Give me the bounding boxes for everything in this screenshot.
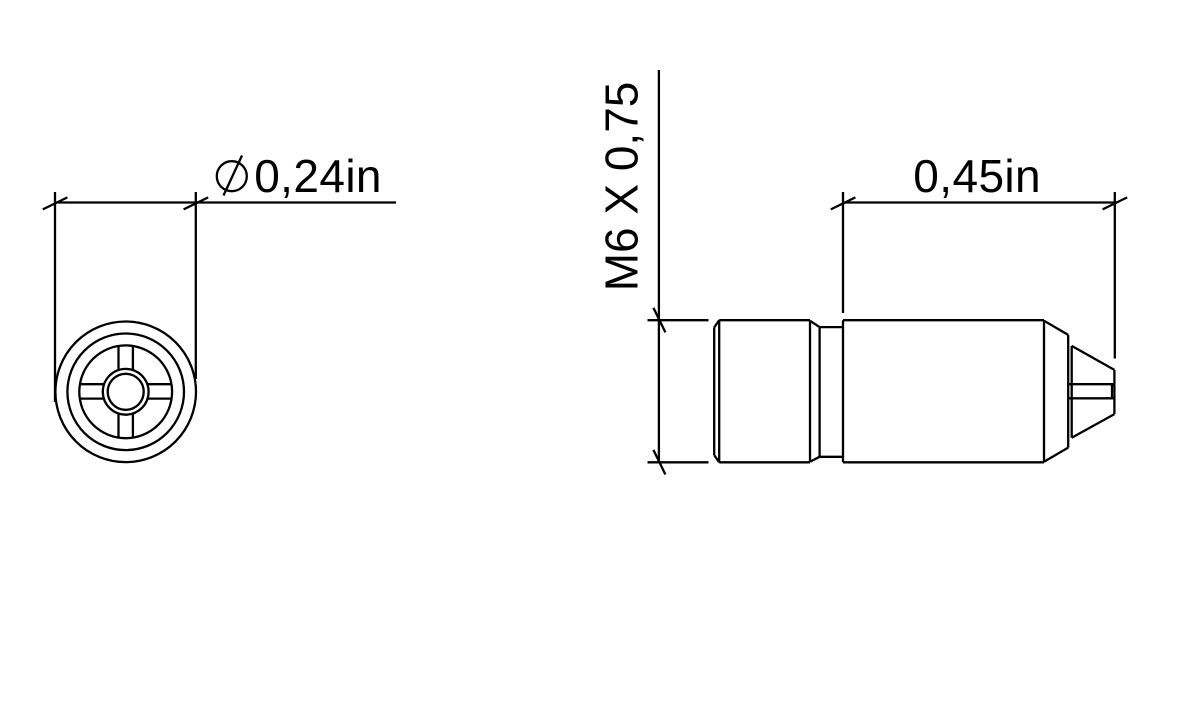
svg-text:M6 X 0,75: M6 X 0,75 — [596, 82, 648, 292]
svg-text:0,45in: 0,45in — [913, 150, 1041, 202]
svg-text:0,24in: 0,24in — [254, 150, 382, 202]
